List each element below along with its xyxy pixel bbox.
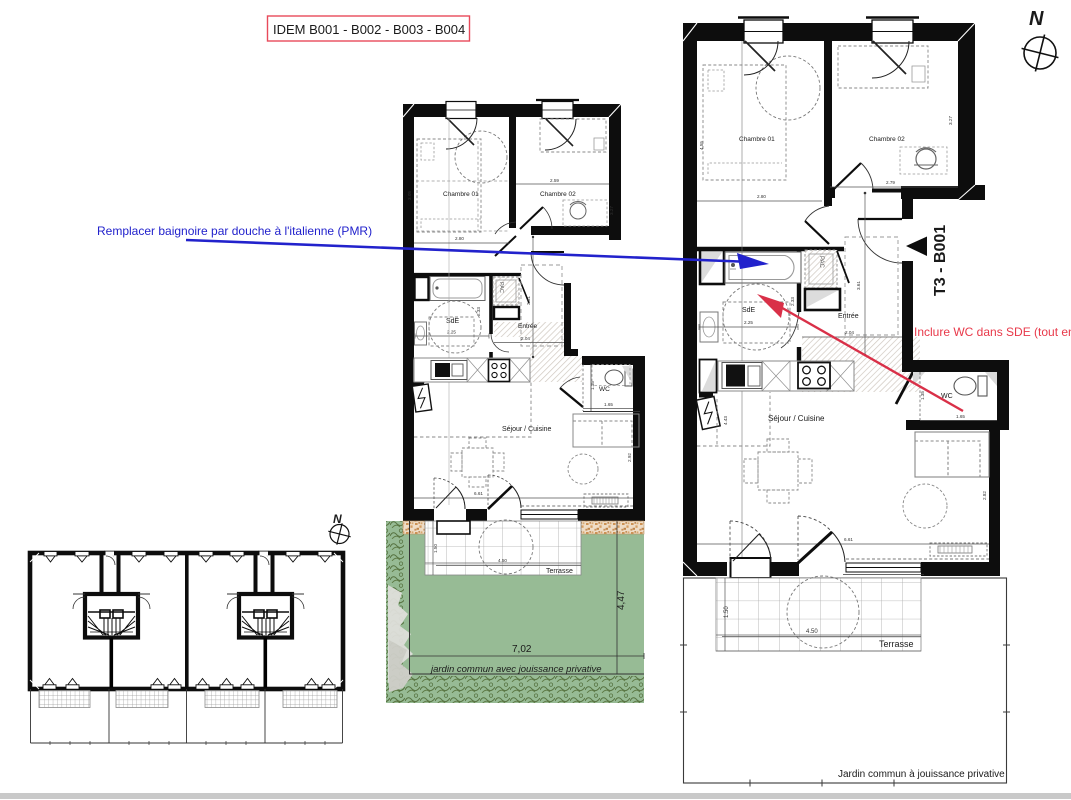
svg-text:1.50: 1.50: [433, 544, 438, 553]
svg-text:Chambre 02: Chambre 02: [869, 136, 905, 143]
svg-text:Inclure WC dans SDE (tout en: Inclure WC dans SDE (tout en: [914, 325, 1071, 339]
svg-text:3.61: 3.61: [856, 281, 861, 290]
svg-text:6.61: 6.61: [474, 491, 483, 496]
svg-text:T3 - B001: T3 - B001: [932, 225, 949, 296]
svg-text:2.25: 2.25: [447, 330, 456, 335]
svg-text:Séjour / Cuisine: Séjour / Cuisine: [502, 426, 552, 433]
svg-text:WC: WC: [599, 386, 610, 393]
svg-text:Remplacer baignoire par douche: Remplacer baignoire par douche à l'itali…: [97, 224, 372, 238]
svg-text:3.27: 3.27: [609, 206, 614, 215]
svg-text:1.65: 1.65: [956, 414, 965, 419]
svg-text:3.05: 3.05: [407, 191, 412, 200]
svg-text:2.04: 2.04: [521, 336, 530, 341]
svg-text:4.50: 4.50: [806, 629, 818, 635]
svg-text:Entrée: Entrée: [838, 313, 859, 320]
svg-text:2.25: 2.25: [744, 320, 753, 325]
svg-text:Terrasse: Terrasse: [546, 568, 573, 575]
svg-text:2.33: 2.33: [476, 307, 481, 316]
svg-text:2.04: 2.04: [845, 330, 854, 335]
svg-text:4.43: 4.43: [723, 416, 728, 425]
svg-text:4.50: 4.50: [498, 558, 507, 563]
svg-text:SdE: SdE: [446, 318, 460, 325]
svg-text:SdE: SdE: [742, 307, 756, 314]
svg-text:2.79: 2.79: [886, 180, 895, 185]
svg-text:2.92: 2.92: [627, 453, 632, 462]
svg-text:2.80: 2.80: [757, 194, 766, 199]
svg-text:1.35: 1.35: [590, 381, 595, 390]
svg-text:3.27: 3.27: [948, 116, 953, 125]
svg-text:Séjour / Cuisine: Séjour / Cuisine: [768, 414, 825, 423]
svg-text:1.65: 1.65: [604, 402, 613, 407]
svg-text:Chambre 01: Chambre 01: [443, 191, 479, 198]
svg-text:Chambre 01: Chambre 01: [739, 136, 775, 143]
svg-text:PAC: PAC: [818, 256, 824, 269]
svg-text:7,02: 7,02: [512, 644, 532, 655]
svg-text:4,47: 4,47: [616, 590, 627, 610]
svg-text:N: N: [1029, 8, 1044, 30]
svg-text:6.61: 6.61: [844, 537, 853, 542]
svg-text:IDEM B001 - B002 - B003 - B004: IDEM B001 - B002 - B003 - B004: [273, 22, 465, 37]
svg-text:PAC: PAC: [498, 282, 504, 293]
svg-text:2.80: 2.80: [455, 236, 464, 241]
svg-text:Jardin commun à jouissance pri: Jardin commun à jouissance privative: [838, 769, 1005, 780]
svg-text:2.59: 2.59: [550, 178, 559, 183]
svg-text:Terrasse: Terrasse: [879, 639, 914, 649]
svg-text:N: N: [333, 512, 342, 526]
svg-text:4.55: 4.55: [699, 141, 704, 150]
svg-text:Entrée: Entrée: [518, 323, 538, 330]
svg-text:2.33: 2.33: [790, 297, 795, 306]
svg-text:jardin commun avec jouissance: jardin commun avec jouissance privative: [429, 664, 602, 675]
svg-text:2.82: 2.82: [982, 491, 987, 500]
svg-text:3.61: 3.61: [526, 296, 531, 305]
svg-text:1.35: 1.35: [920, 391, 925, 400]
svg-text:Chambre 02: Chambre 02: [540, 191, 576, 198]
